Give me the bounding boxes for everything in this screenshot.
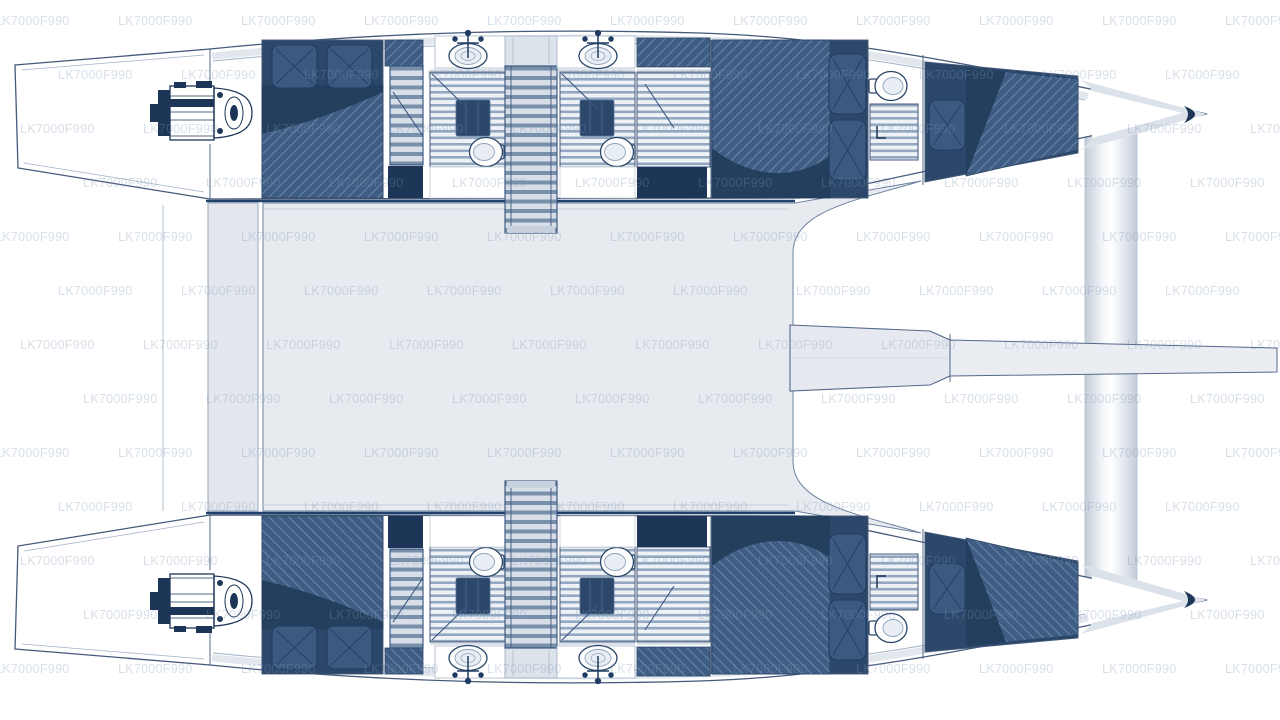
forward-double-cabin bbox=[712, 40, 868, 198]
bow-deck bbox=[1080, 80, 1207, 150]
corridor bbox=[637, 38, 710, 198]
catamaran-floorplan bbox=[0, 0, 1280, 720]
head-mid bbox=[557, 31, 635, 198]
shower-drain bbox=[456, 100, 490, 136]
sink-icon bbox=[449, 31, 487, 69]
companionway-stairs bbox=[505, 66, 557, 233]
pillow bbox=[829, 120, 866, 180]
central-companionway bbox=[505, 36, 557, 233]
aft-cabinet bbox=[388, 166, 423, 198]
pillow bbox=[829, 54, 866, 114]
bowsprit-boom bbox=[790, 325, 1277, 391]
head-aft bbox=[430, 31, 505, 198]
boom-outer-section bbox=[950, 340, 1277, 376]
pillow bbox=[929, 100, 965, 150]
catamaran-floorplan-page: LK7000F990LK7000F990LK7000F990LK7000F990… bbox=[0, 0, 1280, 720]
aft-walkway bbox=[208, 203, 258, 511]
pillow bbox=[327, 45, 372, 88]
head-locker bbox=[560, 167, 635, 198]
aft-stairs bbox=[390, 66, 423, 165]
cabinet bbox=[637, 167, 707, 198]
shower-drain bbox=[580, 100, 614, 136]
corridor-floor bbox=[637, 72, 710, 167]
aft-double-cabin bbox=[262, 40, 383, 198]
head-locker bbox=[430, 167, 505, 198]
bow-cabin bbox=[925, 62, 1078, 182]
aft-companionway bbox=[385, 40, 423, 198]
shelf bbox=[637, 38, 710, 67]
aft-locker bbox=[385, 40, 423, 66]
sink-icon bbox=[579, 31, 617, 69]
pillow bbox=[272, 45, 317, 88]
stair-landing bbox=[507, 226, 555, 233]
